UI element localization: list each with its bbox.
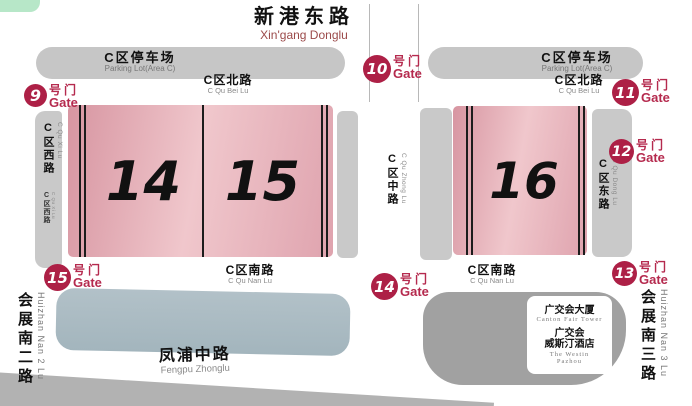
parking-right-label: C区停车场 Parking Lot(Area C) (492, 51, 662, 73)
parking-left-zh: C区停车场 (55, 51, 225, 65)
green-corner-shape (0, 0, 40, 12)
hall-divider-line (79, 105, 81, 257)
road-nan-left-en: C Qu Nan Lu (190, 277, 310, 285)
gate-9-en: Gate (49, 96, 79, 109)
hall-divider-line (326, 105, 328, 257)
center-road-right-band (420, 108, 452, 260)
hall-divider-line (466, 106, 468, 255)
road-zhong-en: C Qu Zhong Lu (400, 153, 407, 206)
road-bei-left-en: C Qu Bei Lu (168, 87, 288, 95)
huizhan3-zh: 会展南三路 (637, 289, 658, 384)
gate-15-en: Gate (73, 276, 103, 289)
hall-divider-line (578, 106, 580, 255)
title-en: Xin'gang Donglu (204, 29, 404, 43)
westin-en-line1: The Westin (527, 351, 612, 358)
road-xi-en: C Qu Xi Lu (56, 122, 63, 175)
huizhan3-en: Huizhan Nan 3 Lu (659, 289, 669, 384)
gate-11-badge: 11 (612, 79, 639, 106)
street-label-huizhan-nan-3: 会展南三路 Huizhan Nan 3 Lu (637, 289, 669, 384)
gate-12-en: Gate (636, 151, 666, 164)
gate-11-en: Gate (641, 91, 671, 104)
gate-9: 9 号门 Gate (24, 84, 79, 109)
parking-right-zh: C区停车场 (492, 51, 662, 65)
gate-13-badge: 13 (612, 261, 637, 286)
road-dong-zh: C区东路 (595, 158, 611, 211)
center-road-left-band (337, 111, 358, 258)
road-label-nan-left: C区南路 C Qu Nan Lu (190, 264, 310, 284)
hall-16-number: 16 (470, 106, 578, 255)
canton-fair-area-c-map: 广交会大厦 Canton Fair Tower 广交会 威斯汀酒店 The We… (0, 0, 692, 406)
road-dong-en: C Qu Dong Lu (611, 158, 618, 211)
huizhan2-zh: 会展南二路 (14, 292, 35, 387)
title-zh: 新港东路 (204, 6, 404, 29)
hotel-building: 广交会大厦 Canton Fair Tower 广交会 威斯汀酒店 The We… (423, 292, 626, 385)
road-bei-left-zh: C区北路 (168, 74, 288, 87)
gate-14: 14 号门 Gate (371, 273, 430, 300)
westin-zh-line1: 广交会 (527, 328, 612, 340)
huizhan2-en: Huizhan Nan 2 Lu (36, 292, 46, 387)
parking-left-en: Parking Lot(Area C) (55, 65, 225, 73)
road-label-nan-right: C区南路 C Qu Nan Lu (432, 264, 552, 284)
road-nan-right-zh: C区南路 (432, 264, 552, 277)
gate-10-en: Gate (393, 67, 423, 80)
road-label-xi: C区西路 C Qu Xi Lu (40, 122, 63, 175)
hall-divider-line (583, 106, 585, 255)
gate-9-badge: 9 (24, 84, 47, 107)
parking-left-label: C区停车场 Parking Lot(Area C) (55, 51, 225, 73)
gate-13-en: Gate (639, 273, 669, 286)
gate-10: 10 号门 Gate (363, 55, 423, 83)
road-nan-right-en: C Qu Nan Lu (432, 277, 552, 285)
road-label-dong: C区东路 C Qu Dong Lu (595, 158, 618, 211)
road-label-xi-small: C区西路 C Qu Xi Lu (41, 192, 56, 224)
hall-14-number: 14 (84, 105, 203, 257)
fengpu-zhonglu-road (0, 371, 494, 406)
gate-15-badge: 15 (44, 264, 71, 291)
canton-fair-tower-en: Canton Fair Tower (527, 316, 612, 323)
gate-10-badge: 10 (363, 55, 391, 83)
westin-zh-line2: 威斯汀酒店 (527, 339, 612, 351)
westin-en-line2: Pazhou (527, 358, 612, 365)
gate-12: 12 号门 Gate (609, 139, 666, 164)
gate-11: 11 号门 Gate (612, 79, 671, 106)
road-zhong-zh: C区中路 (384, 153, 400, 206)
hall-14-15-block: 14 15 (68, 105, 333, 257)
parking-right-en: Parking Lot(Area C) (492, 65, 662, 73)
gate-14-badge: 14 (371, 273, 398, 300)
road-xi-small-en: C Qu Xi Lu (51, 192, 56, 224)
gate-12-badge: 12 (609, 139, 634, 164)
gate-14-en: Gate (400, 285, 430, 298)
road-label-fengpu: 凤浦中路 Fengpu Zhonglu (135, 346, 256, 377)
hotel-label-box: 广交会大厦 Canton Fair Tower 广交会 威斯汀酒店 The We… (527, 296, 612, 374)
road-xi-small-zh: C区西路 (41, 192, 51, 224)
street-label-huizhan-nan-2: 会展南二路 Huizhan Nan 2 Lu (14, 292, 46, 387)
road-label-zhong: C区中路 C Qu Zhong Lu (384, 153, 407, 206)
hall-15-number: 15 (203, 105, 322, 257)
road-xi-zh: C区西路 (40, 122, 56, 175)
road-nan-left-zh: C区南路 (190, 264, 310, 277)
hall-16-block: 16 (453, 106, 587, 255)
gate-13: 13 号门 Gate (612, 261, 669, 286)
road-label-bei-left: C区北路 C Qu Bei Lu (168, 74, 288, 94)
gate-15: 15 号门 Gate (44, 264, 103, 291)
main-road-title: 新港东路 Xin'gang Donglu (204, 6, 404, 43)
canton-fair-tower-zh: 广交会大厦 (527, 305, 612, 317)
